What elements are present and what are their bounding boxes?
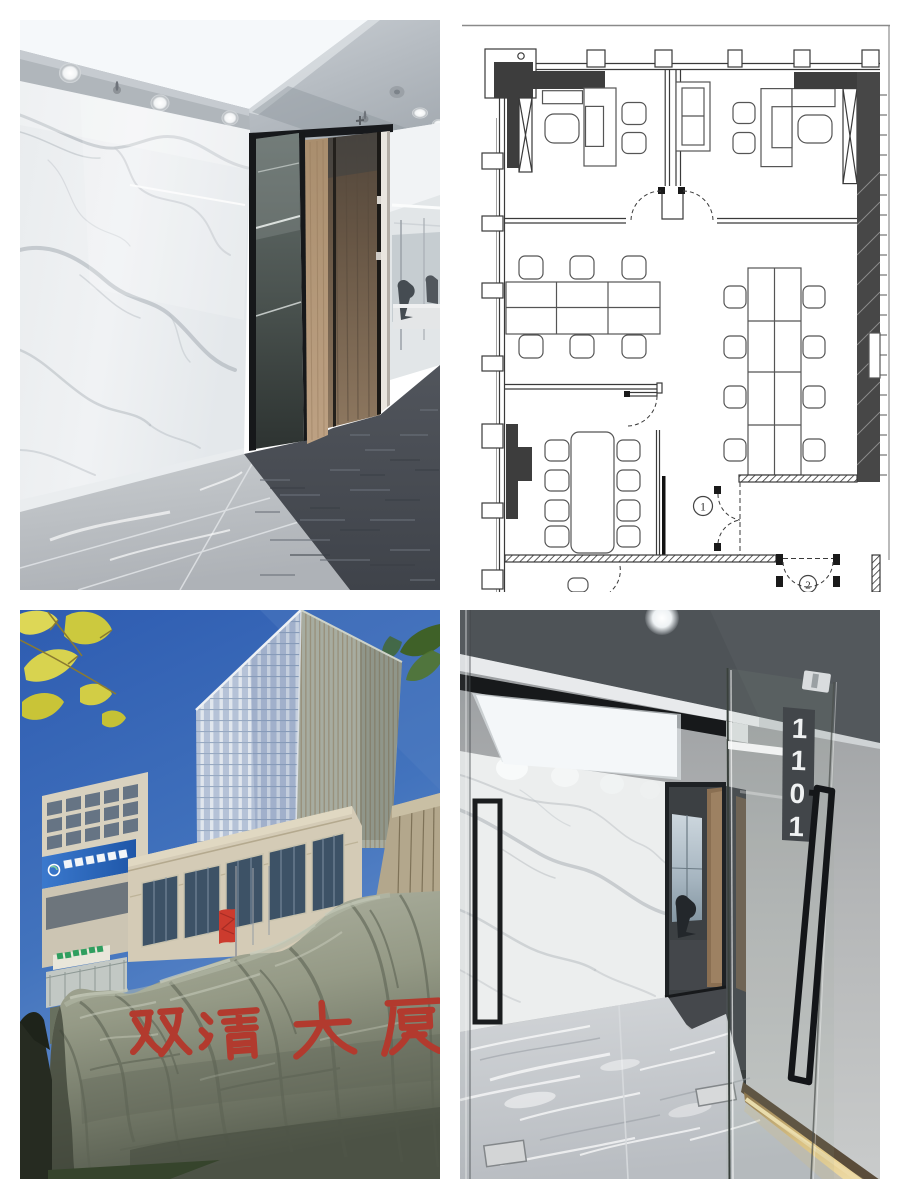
svg-text:1: 1 [788, 811, 805, 843]
svg-text:0: 0 [789, 778, 806, 810]
svg-text:1: 1 [790, 745, 807, 777]
svg-text:1: 1 [700, 500, 706, 514]
svg-text:2: 2 [805, 580, 811, 592]
svg-text:1: 1 [791, 713, 808, 745]
